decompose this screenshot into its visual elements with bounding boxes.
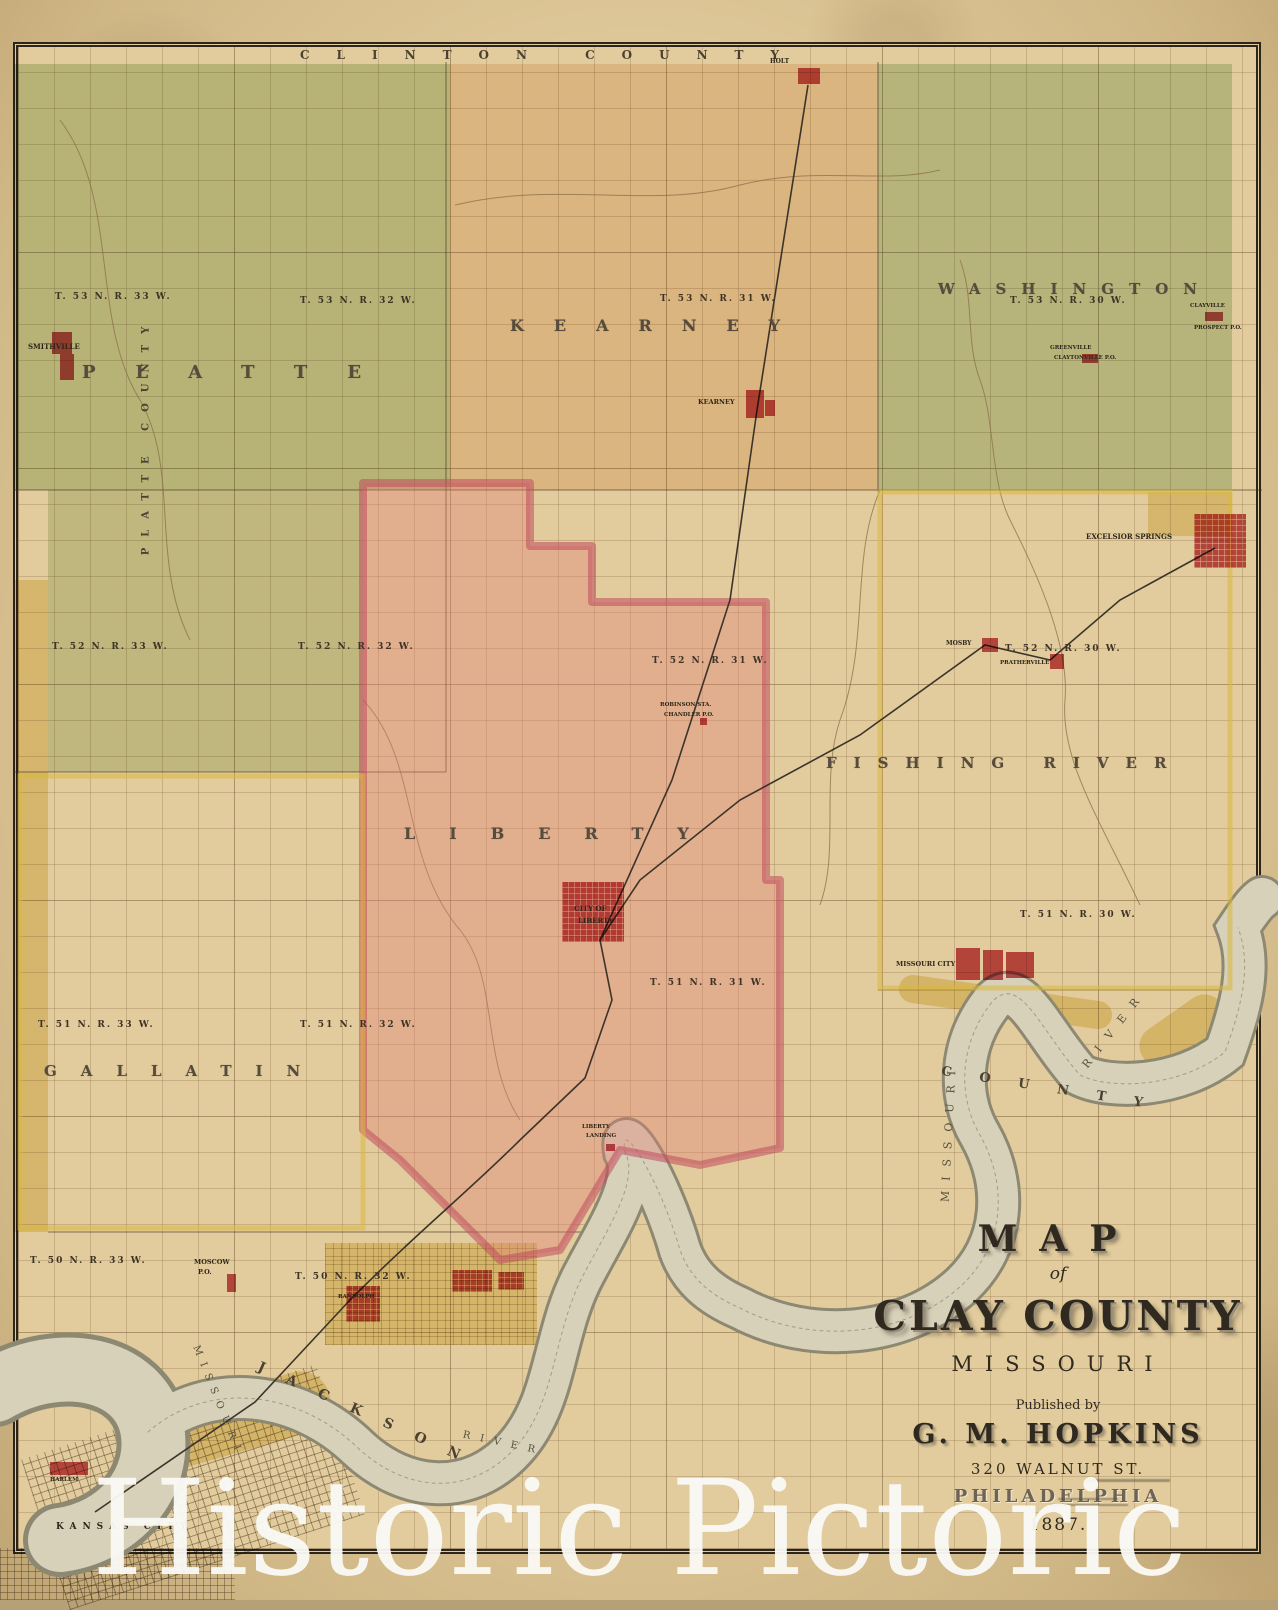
township-kearney: KEARNEY	[510, 316, 810, 335]
holt-label: HOLT	[770, 58, 789, 65]
mosby-label: MOSBY	[946, 640, 971, 647]
harlem-label: HARLEM	[50, 1477, 78, 1483]
range-t52-r31: T. 52 N. R. 31 W.	[652, 656, 769, 666]
range-t53-r30: T. 53 N. R. 30 W.	[1010, 296, 1127, 306]
clayville-label: CLAYVILLE	[1190, 303, 1225, 309]
missouri-city-block	[983, 950, 1003, 980]
city-of-liberty-sublabel: LIBERTY	[578, 916, 613, 925]
harlem-block	[50, 1462, 88, 1475]
moscow-sublabel: P.O.	[198, 1268, 212, 1276]
mosby-block	[982, 638, 998, 652]
range-t51-r33: T. 51 N. R. 33 W.	[38, 1020, 155, 1030]
greenville-sublabel: CLAYTONVILLE P.O.	[1054, 355, 1116, 361]
missouri-river-label-bend: MISSOURI	[939, 1061, 959, 1203]
randolph-block	[452, 1270, 492, 1292]
clayville-block	[1205, 312, 1223, 321]
title-published-by: Published by	[868, 1398, 1248, 1413]
smithville-block	[60, 354, 74, 380]
city-of-liberty-label: CITY OF	[574, 904, 607, 913]
randolph-label: RANDOLPH	[338, 1294, 375, 1300]
range-t51-r31: T. 51 N. R. 31 W.	[650, 978, 767, 988]
missouri-river-label-west: MISSOURI	[190, 1344, 245, 1459]
title-missouri: MISSOURI	[868, 1352, 1248, 1376]
robinson-sta-block	[700, 718, 707, 725]
river-label-east: RIVER	[1079, 986, 1149, 1070]
title-map: MAP	[868, 1218, 1248, 1260]
township-platte: PLATTE	[82, 362, 401, 383]
title-county: CLAY COUNTY	[868, 1292, 1248, 1340]
title-publisher: G. M. HOPKINS	[868, 1419, 1248, 1450]
township-liberty: LIBERTY	[404, 824, 723, 843]
missouri-city-block	[1006, 952, 1034, 978]
prathersville-block	[1050, 654, 1064, 669]
range-t51-r32: T. 51 N. R. 32 W.	[300, 1020, 417, 1030]
range-t50-r32: T. 50 N. R. 32 W.	[295, 1272, 412, 1282]
range-t51-r30: T. 51 N. R. 30 W.	[1020, 910, 1137, 920]
greenville-label: GREENVILLE	[1050, 345, 1091, 351]
range-t53-r31: T. 53 N. R. 31 W.	[660, 294, 777, 304]
smithville-label: SMITHVILLE	[28, 342, 80, 351]
excelsior-springs-label: EXCELSIOR SPRINGS	[1086, 532, 1172, 541]
historic-pictoric-watermark: Historic Pictoric	[91, 1452, 1187, 1606]
township-gallatin: GALLATIN	[44, 1062, 324, 1080]
range-t52-r30: T. 52 N. R. 30 W.	[1005, 644, 1122, 654]
range-t53-r33: T. 53 N. R. 33 W.	[55, 292, 172, 302]
randolph-block	[498, 1272, 524, 1290]
randolph-block	[346, 1286, 380, 1322]
excelsior-springs-block	[1194, 514, 1246, 568]
missouri-city-block	[956, 948, 980, 980]
platte-county-label: PLATTE COUNTY	[140, 316, 151, 556]
range-t52-r32: T. 52 N. R. 32 W.	[298, 642, 415, 652]
holt-block	[798, 68, 820, 84]
moscow-block	[227, 1274, 236, 1292]
prathersville-label: PRATHERVILLE	[1000, 660, 1049, 666]
missouri-city-label: MISSOURI CITY	[896, 960, 955, 968]
robinson-sta-sublabel: CHANDLER P.O.	[664, 712, 714, 718]
range-t52-r33: T. 52 N. R. 33 W.	[52, 642, 169, 652]
robinson-sta-label: ROBINSON STA.	[660, 702, 711, 708]
clayville-sublabel: PROSPECT P.O.	[1194, 325, 1242, 331]
range-t53-r32: T. 53 N. R. 32 W.	[300, 296, 417, 306]
moscow-label: MOSCOW	[194, 1258, 230, 1266]
liberty-landing-sublabel: LANDING	[586, 1133, 616, 1139]
liberty-landing-block	[606, 1144, 615, 1151]
township-fishing-river: FISHING RIVER	[826, 754, 1183, 772]
county-bottom-label: COUNTY	[940, 1064, 1171, 1115]
kearney-town-block	[765, 400, 775, 416]
kearney-town-label: KEARNEY	[698, 398, 735, 406]
clinton-county-label: CLINTON COUNTY	[300, 48, 806, 62]
kearney-town-block	[746, 390, 764, 418]
range-t50-r33: T. 50 N. R. 33 W.	[30, 1256, 147, 1266]
title-of: of	[868, 1264, 1248, 1284]
liberty-landing-label: LIBERTY	[582, 1124, 610, 1130]
